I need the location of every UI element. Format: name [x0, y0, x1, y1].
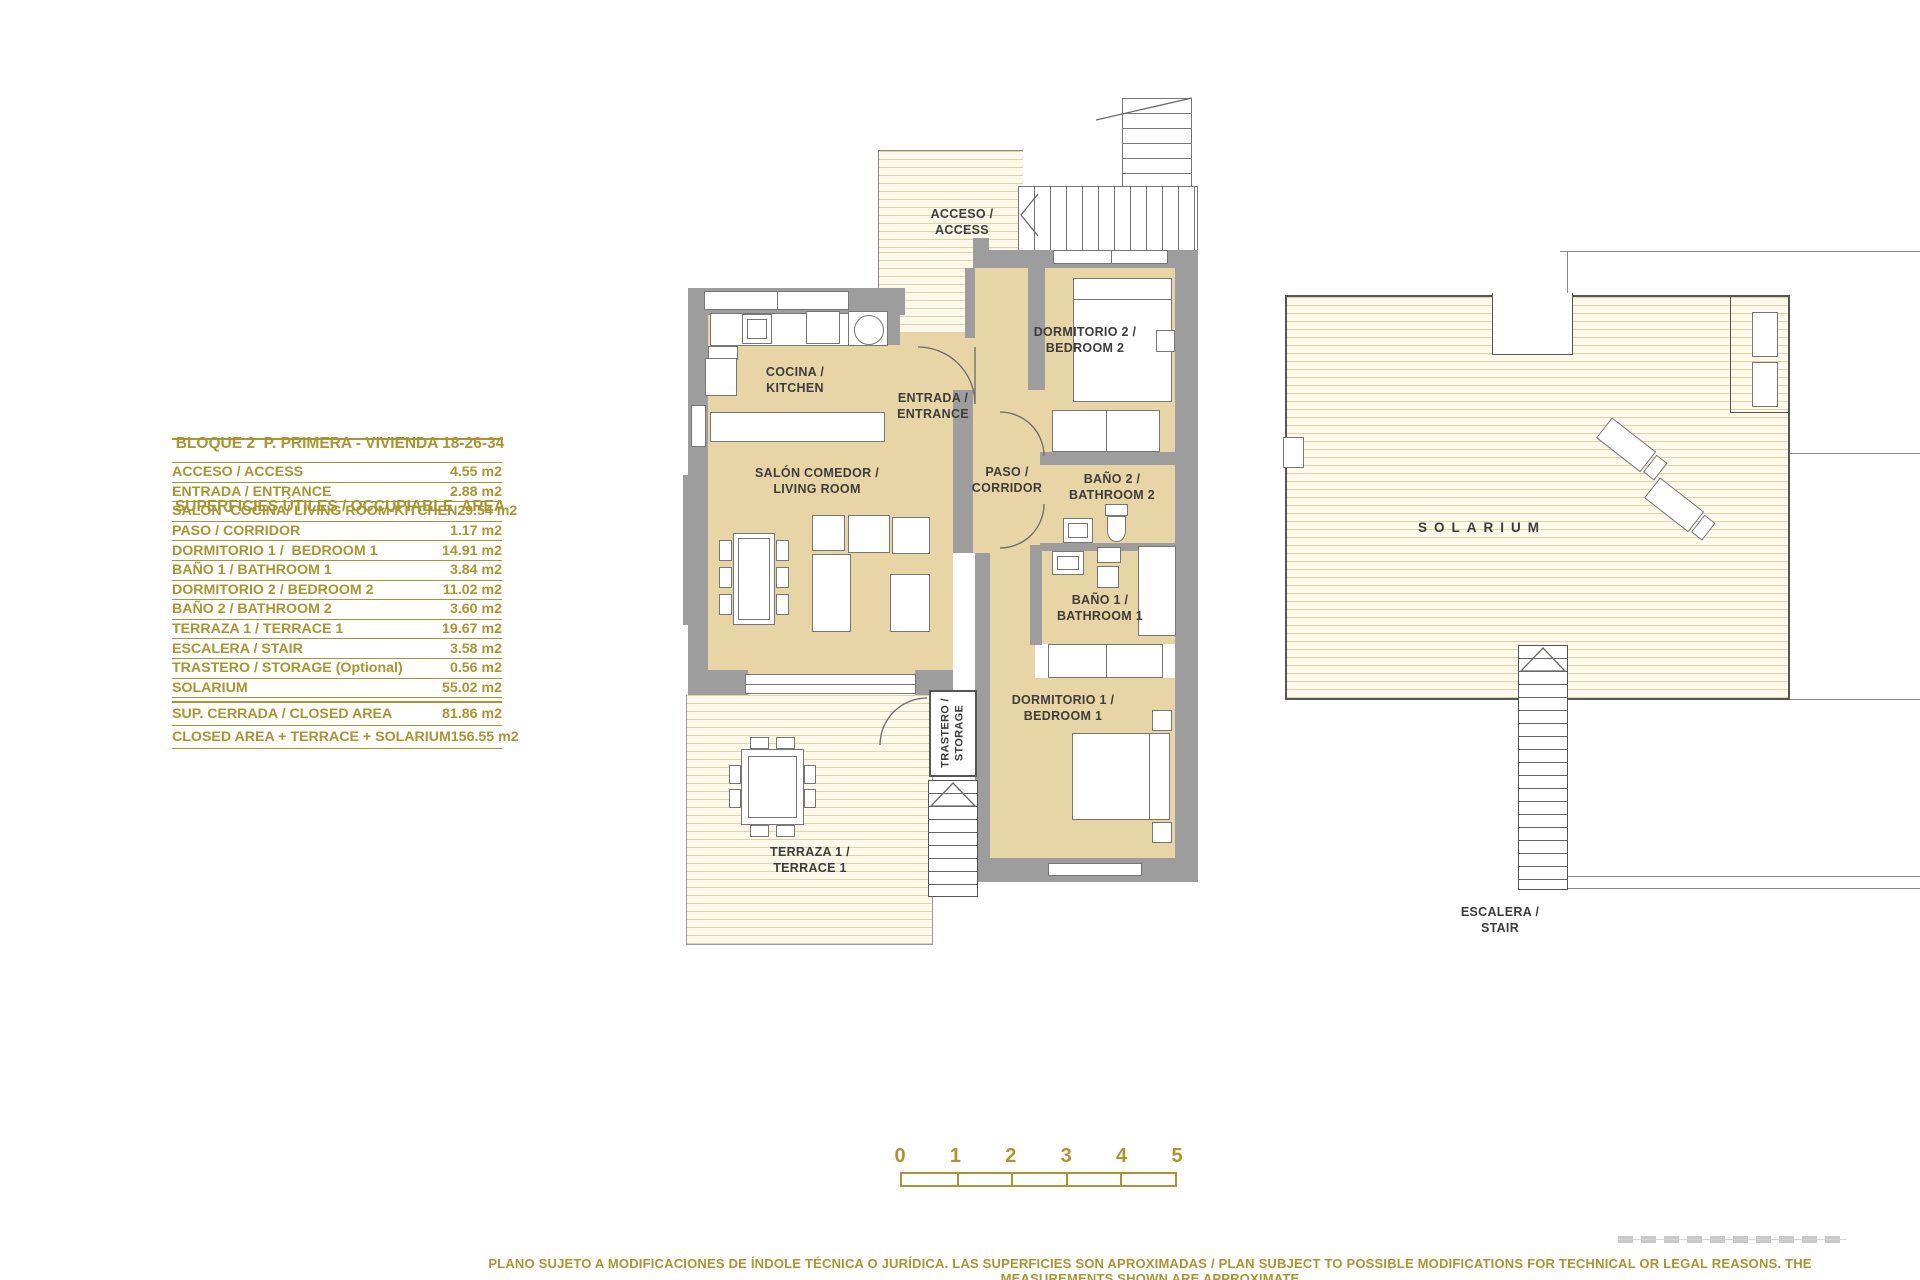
label-bathroom2: BAÑO 2 /BATHROOM 2 — [1069, 471, 1155, 504]
dining-chair — [719, 594, 732, 615]
label-bathroom1: BAÑO 1 /BATHROOM 1 — [1057, 592, 1143, 625]
toilet-bathroom2 — [1107, 516, 1126, 542]
solarium-notch — [1492, 293, 1573, 355]
row-label: DORMITORIO 2 / BEDROOM 2 — [172, 582, 374, 598]
terrace-chair — [750, 737, 769, 749]
label-solarium: SOLARIUM — [1418, 519, 1546, 537]
table-row: TRASTERO / STORAGE (Optional)0.56 m2 — [172, 659, 502, 679]
scale-bar: 0 1 2 3 4 5 — [900, 1145, 1177, 1191]
sofa-module — [890, 574, 930, 632]
row-value: 4.55 m2 — [450, 464, 502, 480]
floor-bedroom1-entry — [990, 553, 1035, 683]
window-living-terrace — [745, 674, 916, 694]
table-row: BAÑO 1 / BATHROOM 13.84 m2 — [172, 561, 502, 581]
label-access: ACCESO /ACCESS — [931, 206, 994, 239]
summary-row: CLOSED AREA + TERRACE + SOLARIUM156.55 m… — [172, 726, 502, 749]
wardrobe-bedroom2 — [1052, 410, 1160, 452]
row-label: ACCESO / ACCESS — [172, 464, 303, 480]
bed-bedroom1 — [1072, 733, 1170, 820]
neighbor-line-top — [1560, 251, 1920, 252]
row-value: 3.84 m2 — [450, 562, 502, 578]
row-label: SUP. CERRADA / CLOSED AREA — [172, 706, 392, 722]
neighbor-line-right — [1790, 453, 1920, 454]
shower-tray-bathroom1 — [1097, 566, 1119, 588]
neighbor-line-bottom — [1790, 699, 1920, 700]
sofa-module — [848, 515, 890, 553]
label-terrace: TERRAZA 1 /TERRACE 1 — [770, 844, 850, 877]
scale-tick-label: 5 — [1171, 1145, 1182, 1168]
summary-row: SUP. CERRADA / CLOSED AREA81.86 m2 — [172, 703, 502, 726]
label-living-room: SALÓN COMEDOR /LIVING ROOM — [755, 465, 879, 498]
row-label: DORMITORIO 1 / BEDROOM 1 — [172, 543, 377, 559]
row-value: 3.58 m2 — [450, 641, 502, 657]
dining-chair — [719, 540, 732, 561]
nightstand-bedroom2 — [1156, 330, 1175, 352]
dining-chair — [776, 567, 789, 588]
table-row: TERRAZA 1 / TERRACE 119.67 m2 — [172, 620, 502, 640]
table-row: ENTRADA / ENTRANCE2.88 m2 — [172, 483, 502, 503]
window-kitchen-top — [704, 291, 849, 310]
row-label: PASO / CORRIDOR — [172, 523, 300, 539]
wall-party-right — [1175, 250, 1198, 882]
terrace-chair — [750, 825, 769, 837]
wall-bedroom2-bath2 — [1040, 452, 1175, 465]
table-row: ESCALERA / STAIR3.58 m2 — [172, 639, 502, 659]
access-stair-lower-flight — [1018, 186, 1198, 252]
solarium-stair — [1518, 645, 1568, 890]
shower-head-bathroom1 — [1097, 547, 1121, 563]
area-table: ACCESO / ACCESS4.55 m2 ENTRADA / ENTRANC… — [172, 462, 502, 698]
sofa-module — [812, 554, 851, 632]
scale-tick-label: 0 — [894, 1145, 905, 1168]
scale-tick-label: 2 — [1005, 1145, 1016, 1168]
row-label: ESCALERA / STAIR — [172, 641, 303, 657]
wall-kitchen-divider — [887, 309, 900, 345]
shower-bathroom1 — [1138, 546, 1176, 636]
summary-table: SUP. CERRADA / CLOSED AREA81.86 m2 CLOSE… — [172, 701, 502, 749]
row-label: BAÑO 1 / BATHROOM 1 — [172, 562, 332, 578]
kitchen-oven — [806, 311, 840, 344]
table-row: SOLARIUM55.02 m2 — [172, 679, 502, 699]
wall-corridor-bath1 — [1030, 545, 1042, 645]
dining-table — [733, 533, 775, 625]
sofa-module — [892, 517, 930, 554]
floorplan-sheet: BLOQUE 2 P. PRIMERA - VIVIENDA 18-26-34 … — [0, 0, 1920, 1280]
sink-bathroom2 — [1063, 518, 1093, 543]
dining-chair — [719, 567, 732, 588]
row-label: CLOSED AREA + TERRACE + SOLARIUM — [172, 729, 451, 745]
sink-bathroom1 — [1052, 551, 1084, 575]
solarium-closet-line — [1730, 295, 1731, 412]
watermark-strike — [1618, 1239, 1846, 1240]
scale-bar-rule — [900, 1172, 1177, 1187]
wardrobe-bedroom1 — [1048, 644, 1163, 678]
neighbor-line-bottom2 — [1568, 876, 1920, 877]
row-label: TRASTERO / STORAGE (Optional) — [172, 660, 403, 676]
kitchen-washer — [848, 311, 888, 346]
scale-tick-label: 3 — [1061, 1145, 1072, 1168]
table-row: SALON -COCINA/ LIVING ROOM-KITCHEN29.54 … — [172, 502, 502, 522]
dining-chair — [776, 540, 789, 561]
neighbor-line-top-v — [1567, 251, 1568, 295]
label-bedroom2: DORMITORIO 2 /BEDROOM 2 — [1034, 324, 1137, 357]
label-bedroom1: DORMITORIO 1 /BEDROOM 1 — [1012, 692, 1115, 725]
row-value: 1.17 m2 — [450, 523, 502, 539]
table-row: DORMITORIO 1 / BEDROOM 114.91 m2 — [172, 541, 502, 561]
row-value: 19.67 m2 — [442, 621, 502, 637]
terrace-chair — [776, 737, 795, 749]
disclaimer-text: PLANO SUJETO A MODIFICACIONES DE ÍNDOLE … — [440, 1256, 1860, 1280]
wall-left-lower — [688, 625, 708, 675]
panel-title-line1: BLOQUE 2 P. PRIMERA - VIVIENDA 18-26-34 — [150, 434, 530, 455]
row-label: SOLARIUM — [172, 680, 248, 696]
terrace-chair — [804, 765, 816, 784]
row-value: 2.88 m2 — [450, 484, 502, 500]
label-storage: TRASTERO /STORAGE — [939, 698, 968, 768]
solarium-closet-box — [1752, 312, 1778, 357]
wall-access-side — [965, 268, 975, 338]
row-value: 14.91 m2 — [442, 543, 502, 559]
row-value: 156.55 m2 — [451, 729, 519, 745]
row-value: 55.02 m2 — [442, 680, 502, 696]
label-corridor: PASO /CORRIDOR — [972, 464, 1042, 497]
row-label: ENTRADA / ENTRANCE — [172, 484, 331, 500]
sofa-module — [812, 515, 845, 551]
row-label: BAÑO 2 / BATHROOM 2 — [172, 601, 332, 617]
apartment-stair — [928, 780, 978, 897]
terrace-table — [741, 749, 804, 825]
table-row: BAÑO 2 / BATHROOM 23.60 m2 — [172, 600, 502, 620]
neighbor-line-bottom3 — [1568, 888, 1920, 889]
toilet-tank-bathroom2 — [1105, 504, 1128, 516]
row-value: 11.02 m2 — [443, 582, 502, 598]
row-label: TERRAZA 1 / TERRACE 1 — [172, 621, 343, 637]
row-value: 0.56 m2 — [450, 660, 502, 676]
row-label: SALON -COCINA/ LIVING ROOM-KITCHEN — [172, 503, 457, 519]
scale-tick-label: 4 — [1116, 1145, 1127, 1168]
panel-title-divider — [172, 438, 502, 440]
wardrobe-bedroom2-top — [1053, 250, 1168, 264]
terrace-hatch — [686, 695, 933, 945]
terrace-chair — [804, 789, 816, 808]
table-row: ACCESO / ACCESS4.55 m2 — [172, 463, 502, 483]
label-kitchen: COCINA /KITCHEN — [766, 364, 824, 397]
kitchen-peninsula — [710, 412, 885, 442]
kitchen-hob — [705, 358, 737, 396]
floor-entrance-2 — [953, 330, 973, 390]
solarium-closet-box — [1752, 362, 1778, 407]
access-stair-upper-flight — [1122, 98, 1192, 187]
nightstand-bedroom1 — [1152, 822, 1172, 843]
window-left — [691, 405, 706, 447]
window-bedroom1-bottom — [1048, 863, 1142, 876]
wall-bottom-left — [688, 670, 748, 695]
label-entrance: ENTRADA /ENTRANCE — [897, 390, 969, 423]
label-stair: ESCALERA /STAIR — [1461, 904, 1539, 937]
table-row: PASO / CORRIDOR1.17 m2 — [172, 522, 502, 542]
solarium-area — [1285, 295, 1790, 700]
nightstand-bedroom1 — [1152, 710, 1172, 731]
terrace-chair — [776, 825, 795, 837]
scale-tick-label: 1 — [950, 1145, 961, 1168]
terrace-chair — [729, 789, 741, 808]
solarium-chimney — [1283, 437, 1304, 468]
dining-chair — [776, 594, 789, 615]
wall-left-bump — [683, 475, 708, 625]
table-row: DORMITORIO 2 / BEDROOM 211.02 m2 — [172, 581, 502, 601]
row-value: 81.86 m2 — [442, 706, 502, 722]
solarium-closet-line2 — [1730, 412, 1790, 413]
kitchen-sink — [742, 314, 772, 344]
row-value: 29.54 m2 — [457, 503, 517, 519]
row-value: 3.60 m2 — [450, 601, 502, 617]
terrace-chair — [729, 765, 741, 784]
